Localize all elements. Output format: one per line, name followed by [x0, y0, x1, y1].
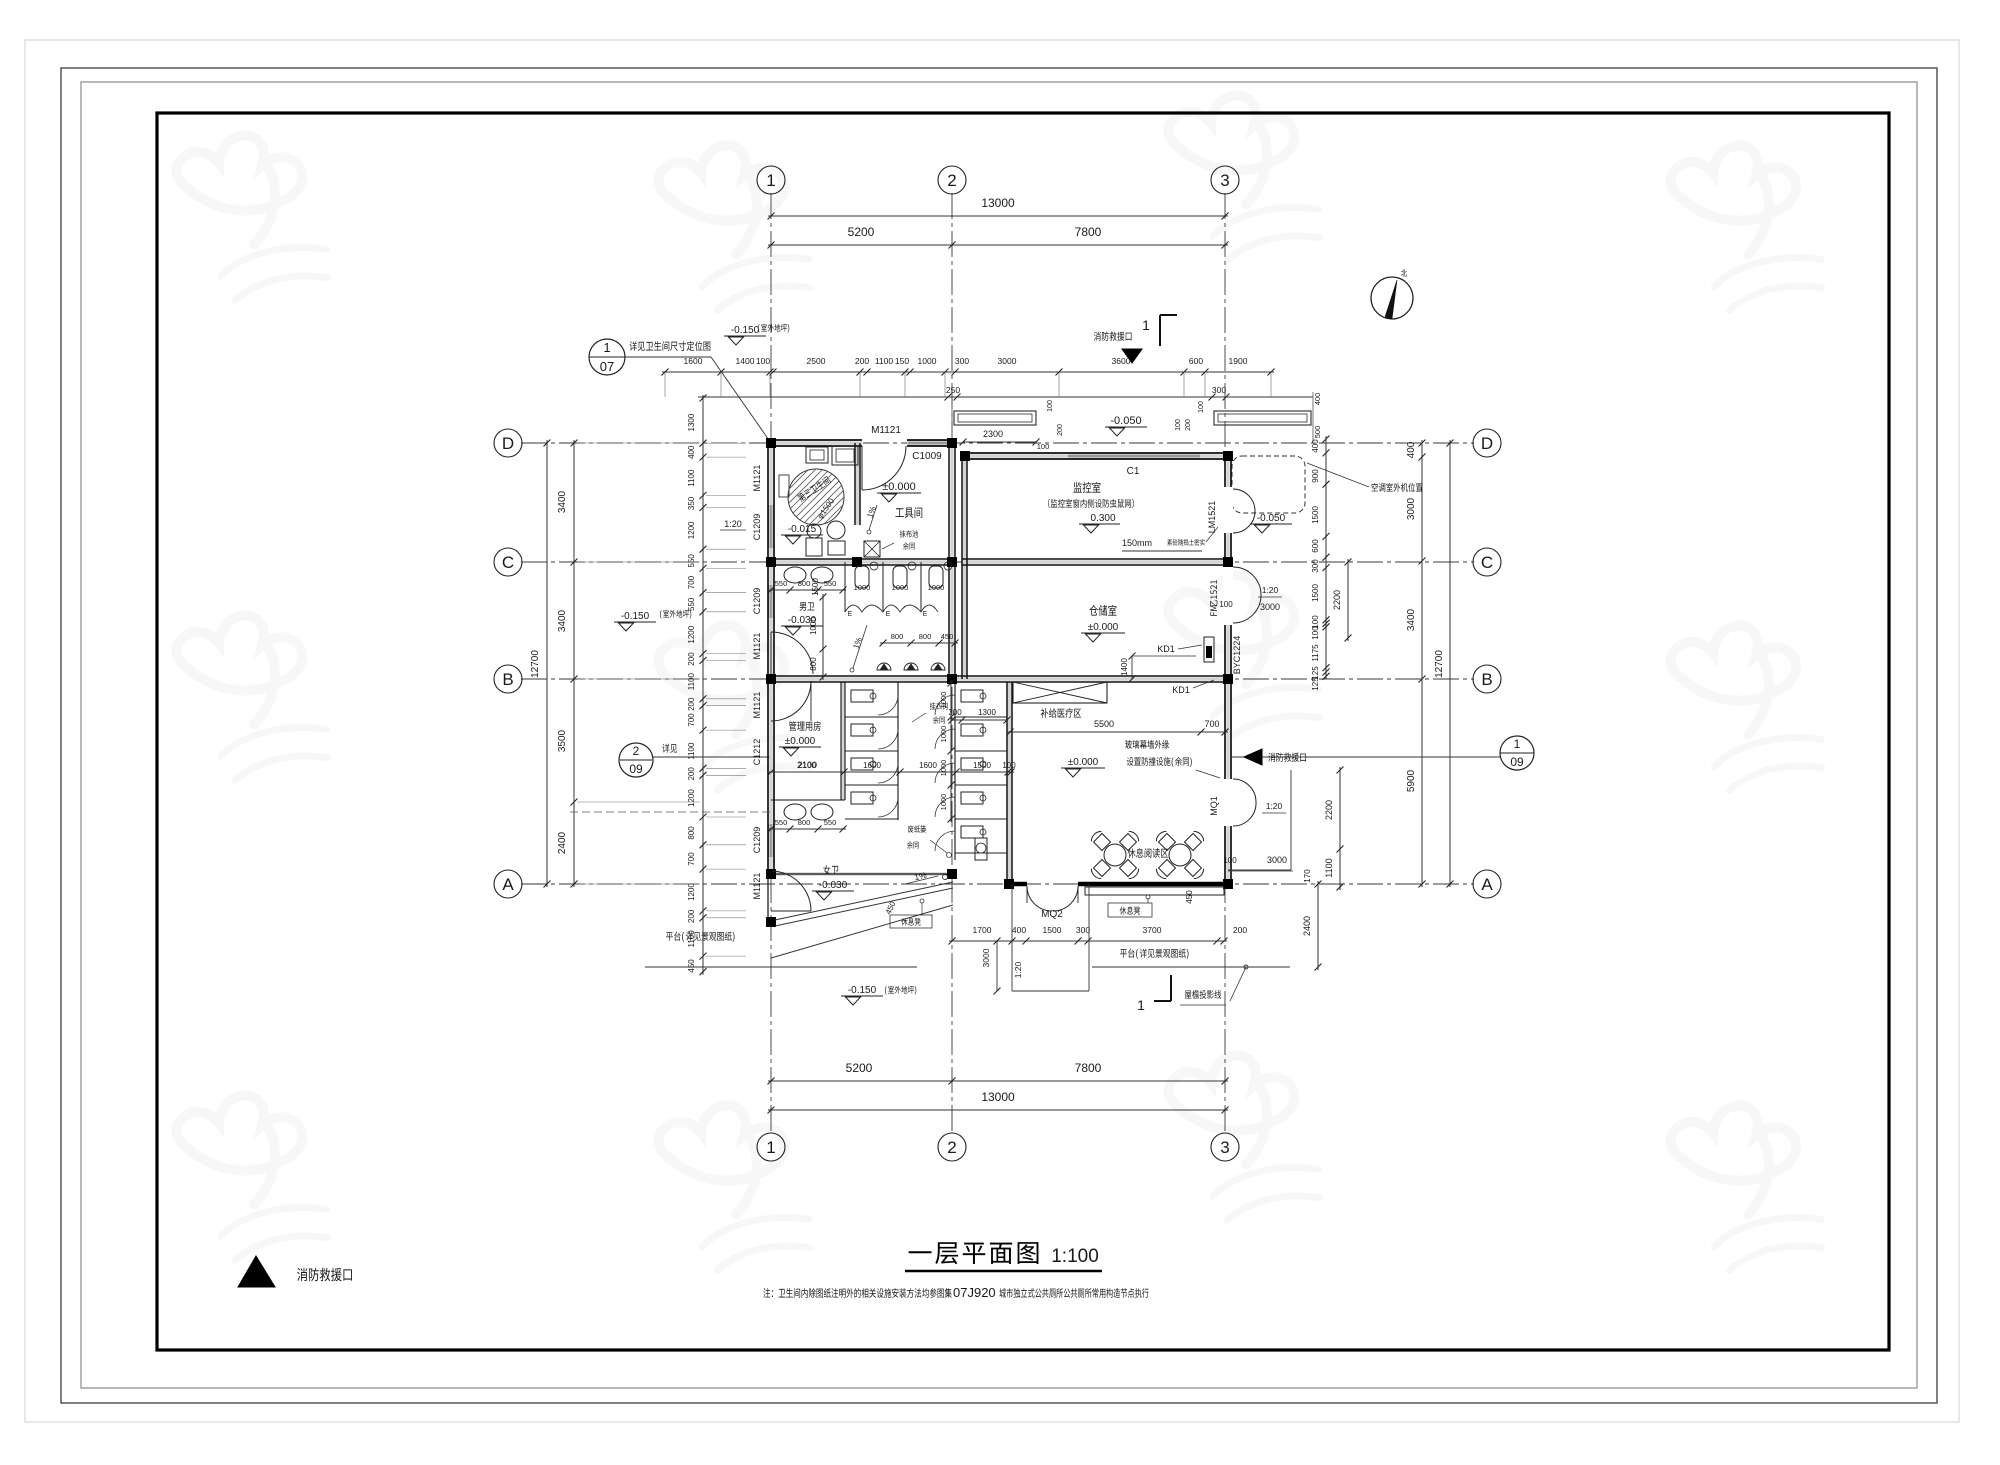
svg-text:B: B: [502, 670, 513, 689]
svg-text:600: 600: [1311, 539, 1320, 553]
svg-text:KD1: KD1: [1172, 685, 1190, 695]
svg-text:1500: 1500: [1043, 925, 1062, 935]
svg-text:-0.050: -0.050: [1257, 513, 1286, 524]
svg-text:400: 400: [1406, 441, 1417, 458]
svg-text:1: 1: [1142, 317, 1150, 333]
svg-text:100: 100: [1047, 400, 1054, 412]
svg-text:-0.030: -0.030: [819, 880, 848, 891]
svg-text:200: 200: [687, 697, 696, 711]
svg-text:1600: 1600: [684, 356, 703, 366]
svg-text:C1: C1: [1127, 466, 1140, 477]
svg-text:3000: 3000: [1406, 497, 1417, 520]
svg-text:±0.000: ±0.000: [785, 736, 816, 747]
svg-text:2400: 2400: [557, 831, 568, 854]
svg-text:2500: 2500: [807, 356, 826, 366]
svg-text:250: 250: [946, 385, 960, 395]
svg-text:1000: 1000: [809, 617, 818, 635]
svg-text:550: 550: [687, 597, 696, 611]
svg-text:700: 700: [1204, 719, 1219, 729]
svg-text:M1121: M1121: [752, 873, 762, 900]
svg-text:1: 1: [1514, 737, 1521, 751]
svg-text:1:20: 1:20: [724, 519, 742, 529]
svg-text:1000: 1000: [854, 583, 871, 592]
svg-text:5900: 5900: [1406, 769, 1417, 792]
svg-text:450: 450: [941, 632, 954, 641]
svg-text:125: 125: [1311, 677, 1320, 691]
svg-text:C1212: C1212: [752, 739, 762, 766]
svg-text:1300: 1300: [978, 708, 996, 717]
svg-text:1200: 1200: [687, 521, 696, 539]
svg-text:C1209: C1209: [752, 514, 762, 541]
svg-text:3000: 3000: [981, 948, 991, 967]
svg-text:1400: 1400: [736, 356, 755, 366]
svg-text:2200: 2200: [1324, 800, 1334, 820]
svg-text:M1121: M1121: [752, 633, 762, 660]
svg-text:13000: 13000: [981, 196, 1015, 210]
svg-text:1500: 1500: [973, 761, 991, 770]
svg-text:1000: 1000: [928, 583, 945, 592]
svg-text:A: A: [1481, 875, 1493, 894]
svg-text:100: 100: [756, 356, 770, 366]
svg-text:100: 100: [1311, 626, 1320, 640]
svg-text:200: 200: [1057, 424, 1064, 436]
svg-text:KD1: KD1: [1157, 644, 1175, 654]
svg-text:300: 300: [1311, 559, 1320, 573]
svg-text:350: 350: [687, 496, 696, 510]
svg-text:C1009: C1009: [912, 451, 942, 462]
svg-text:E: E: [886, 611, 891, 618]
svg-text:900: 900: [1311, 469, 1320, 483]
svg-text:550: 550: [824, 818, 837, 827]
svg-text:2400: 2400: [1302, 916, 1312, 936]
svg-text:E: E: [923, 611, 928, 618]
svg-text:3000: 3000: [1267, 855, 1287, 865]
svg-text:1100: 1100: [687, 469, 696, 487]
svg-text:1100: 1100: [875, 356, 894, 366]
svg-text:B: B: [1481, 670, 1492, 689]
svg-text:1400: 1400: [1120, 658, 1129, 676]
svg-text:5200: 5200: [848, 225, 875, 239]
svg-text:400: 400: [687, 445, 696, 459]
svg-text:D: D: [502, 434, 514, 453]
svg-text:800: 800: [919, 632, 932, 641]
svg-text:100: 100: [1175, 419, 1182, 431]
svg-text:3500: 3500: [557, 729, 568, 752]
svg-text:M1121: M1121: [752, 692, 762, 719]
svg-text:1500: 1500: [811, 578, 820, 596]
svg-text:MQ2: MQ2: [1041, 909, 1063, 920]
svg-text:170: 170: [1303, 869, 1312, 883]
svg-text:450: 450: [1185, 890, 1194, 904]
svg-text:550: 550: [824, 579, 837, 588]
svg-text:700: 700: [687, 713, 696, 727]
svg-text:±0.000: ±0.000: [1068, 757, 1099, 768]
svg-text:800: 800: [891, 632, 904, 641]
svg-text:5500: 5500: [1094, 719, 1114, 729]
svg-text:LM1521: LM1521: [1207, 501, 1217, 534]
svg-text:200: 200: [855, 356, 869, 366]
svg-text:1175: 1175: [1311, 644, 1320, 662]
svg-text:3: 3: [1220, 171, 1229, 190]
svg-text:100: 100: [1219, 600, 1233, 609]
svg-text:1600: 1600: [919, 761, 937, 770]
svg-text:1:100: 1:100: [1051, 1246, 1099, 1267]
svg-text:1000: 1000: [939, 760, 948, 777]
svg-text:1: 1: [1137, 997, 1145, 1013]
svg-text:600: 600: [1189, 356, 1203, 366]
svg-text:200: 200: [687, 909, 696, 923]
svg-text:-0.015: -0.015: [788, 524, 817, 535]
svg-text:200: 200: [687, 652, 696, 666]
svg-text:100: 100: [1037, 442, 1050, 451]
svg-text:1000: 1000: [939, 794, 948, 811]
svg-text:2200: 2200: [1332, 590, 1342, 610]
svg-text:100: 100: [1198, 401, 1205, 413]
svg-text:3: 3: [1220, 1138, 1229, 1157]
svg-text:400: 400: [1313, 393, 1322, 406]
svg-text:13000: 13000: [981, 1090, 1015, 1104]
svg-text:1500: 1500: [1311, 584, 1320, 602]
svg-text:1900: 1900: [1229, 356, 1248, 366]
svg-text:100: 100: [1002, 761, 1016, 770]
svg-text:150: 150: [895, 356, 909, 366]
svg-text:1200: 1200: [687, 789, 696, 807]
svg-text:800: 800: [798, 579, 811, 588]
svg-text:3000: 3000: [998, 356, 1017, 366]
svg-text:±0.000: ±0.000: [882, 481, 916, 493]
svg-text:1700: 1700: [973, 925, 992, 935]
svg-text:2100: 2100: [798, 761, 816, 770]
svg-text:2: 2: [633, 744, 640, 758]
svg-text:450: 450: [687, 959, 696, 973]
svg-text:1000: 1000: [892, 583, 909, 592]
svg-text:800: 800: [798, 818, 811, 827]
svg-text:200: 200: [1233, 925, 1247, 935]
svg-text:07J920: 07J920: [953, 1285, 996, 1300]
svg-text:100: 100: [1223, 856, 1237, 865]
svg-text:1: 1: [766, 1138, 775, 1157]
svg-text:1100: 1100: [687, 672, 696, 690]
svg-text:550: 550: [775, 818, 788, 827]
svg-text:1:20: 1:20: [1266, 801, 1283, 811]
svg-text:1200: 1200: [687, 625, 696, 643]
svg-text:500: 500: [1313, 426, 1322, 439]
svg-text:-0.150: -0.150: [731, 325, 760, 336]
svg-text:400: 400: [1311, 439, 1320, 453]
svg-text:M1121: M1121: [752, 465, 762, 492]
svg-text:300: 300: [1076, 925, 1090, 935]
svg-text:7800: 7800: [1075, 225, 1102, 239]
svg-text:1200: 1200: [687, 883, 696, 901]
svg-text:800: 800: [687, 826, 696, 840]
svg-text:150mm: 150mm: [1122, 538, 1152, 548]
svg-text:1600: 1600: [863, 761, 881, 770]
svg-text:-0.050: -0.050: [1110, 415, 1141, 427]
svg-text:-0.150: -0.150: [848, 985, 877, 996]
svg-text:MQ1: MQ1: [1209, 796, 1219, 816]
svg-text:C1209: C1209: [752, 588, 762, 615]
svg-text:12700: 12700: [1434, 650, 1445, 678]
svg-text:5200: 5200: [846, 1061, 873, 1075]
svg-text:1500: 1500: [1311, 506, 1320, 524]
svg-text:2: 2: [947, 171, 956, 190]
svg-text:3400: 3400: [1406, 608, 1417, 631]
svg-text:1: 1: [603, 340, 610, 355]
svg-text:400: 400: [1012, 925, 1026, 935]
svg-text:C: C: [1481, 553, 1493, 572]
svg-text:12700: 12700: [530, 650, 541, 678]
svg-text:-0.150: -0.150: [621, 611, 650, 622]
svg-text:0.300: 0.300: [1090, 513, 1115, 524]
svg-text:C1209: C1209: [752, 827, 762, 854]
svg-text:200: 200: [1185, 419, 1192, 431]
svg-text:2300: 2300: [983, 429, 1003, 439]
svg-text:09: 09: [629, 762, 643, 776]
svg-text:A: A: [502, 875, 514, 894]
svg-text:3400: 3400: [557, 490, 568, 513]
svg-text:1:20: 1:20: [1262, 585, 1279, 595]
svg-text:550: 550: [687, 554, 696, 568]
svg-text:C: C: [502, 553, 514, 572]
svg-text:3000: 3000: [1260, 602, 1280, 612]
svg-text:7800: 7800: [1075, 1061, 1102, 1075]
svg-text:1: 1: [766, 171, 775, 190]
svg-text:700: 700: [687, 852, 696, 866]
svg-text:3700: 3700: [1143, 925, 1162, 935]
svg-text:1000: 1000: [939, 726, 948, 743]
svg-text:M1121: M1121: [871, 425, 901, 436]
svg-text:700: 700: [687, 575, 696, 589]
svg-text:1300: 1300: [687, 413, 696, 431]
svg-text:1100: 1100: [1324, 858, 1334, 877]
svg-text:D: D: [1481, 434, 1493, 453]
svg-text:550: 550: [775, 579, 788, 588]
svg-text:1:20: 1:20: [1013, 961, 1023, 978]
svg-text:09: 09: [1510, 755, 1524, 769]
svg-text:200: 200: [687, 767, 696, 781]
svg-text:300: 300: [948, 708, 962, 717]
svg-text:1000: 1000: [918, 356, 937, 366]
svg-text:BYC1224: BYC1224: [1232, 636, 1242, 675]
svg-text:E: E: [848, 611, 853, 618]
svg-text:3400: 3400: [557, 609, 568, 632]
svg-text:07: 07: [600, 359, 614, 374]
svg-text:±0.000: ±0.000: [1088, 622, 1119, 633]
svg-text:2: 2: [947, 1138, 956, 1157]
svg-text:300: 300: [1212, 385, 1226, 395]
svg-text:300: 300: [955, 356, 969, 366]
